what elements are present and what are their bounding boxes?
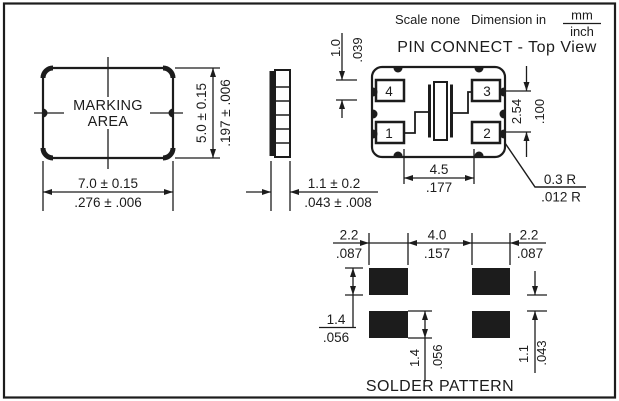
arrowhead-down bbox=[422, 329, 428, 338]
callout-corner-radius: 0.3 R .012 R bbox=[505, 143, 586, 205]
solder-pad-top-left bbox=[369, 268, 408, 295]
thickness-mm-label: 1.1 ± 0.2 bbox=[308, 176, 360, 191]
edge-notch bbox=[500, 110, 505, 119]
pin-1-label: 1 bbox=[385, 126, 393, 141]
dimension-package-height: 5.0 ± 0.15 .197 ± .006 bbox=[175, 68, 233, 158]
pad-gap-mm-label: 4.0 bbox=[428, 228, 447, 243]
dimension-row-gap: 1.1 .043 bbox=[516, 271, 549, 373]
arrowhead-up bbox=[350, 268, 356, 277]
arrowhead-up bbox=[524, 132, 530, 141]
corner-castellation bbox=[163, 68, 173, 78]
corner-castellation bbox=[163, 148, 173, 158]
marking-area-label-line1: MARKING bbox=[73, 98, 143, 114]
unit-mm-label: mm bbox=[571, 8, 593, 23]
edge-notch bbox=[475, 152, 484, 157]
arrowhead-right bbox=[465, 175, 474, 181]
corner-castellation bbox=[43, 148, 53, 158]
pad-pitch-mm-label: 2.54 bbox=[509, 99, 524, 124]
solder-pad-top-right bbox=[472, 268, 510, 295]
solder-pattern-view: 2.2 .087 4.0 .157 2.2 .087 1.4 .056 bbox=[319, 228, 549, 396]
scale-label: Scale none bbox=[395, 12, 460, 27]
arrowhead-down bbox=[350, 286, 356, 295]
package-top-view: MARKING AREA 7.0 ± 0.15 .276 ± .006 5.0 … bbox=[34, 57, 233, 211]
pad-height-left-mm-label: 1.4 bbox=[327, 312, 346, 327]
arrowhead-up bbox=[532, 311, 538, 320]
arrowhead-right bbox=[262, 189, 271, 195]
pad-height-mid-mm-label: 1.4 bbox=[407, 349, 422, 367]
thickness-inch-label: .043 ± .008 bbox=[304, 195, 371, 210]
pin-4-label: 4 bbox=[385, 84, 393, 99]
dimension-in-label: Dimension in bbox=[471, 12, 546, 27]
arrowhead-left bbox=[290, 189, 299, 195]
solder-pad-bottom-left bbox=[369, 311, 408, 338]
arrowhead-left bbox=[404, 175, 413, 181]
crystal-symbol bbox=[404, 82, 472, 140]
crystal-body bbox=[434, 82, 447, 140]
package-width-inch-label: .276 ± .006 bbox=[74, 195, 141, 210]
marking-area-label-line2: AREA bbox=[88, 114, 129, 130]
dimension-pad-height: 1.0 .039 bbox=[328, 33, 365, 118]
arrowhead-up bbox=[210, 68, 216, 77]
pad-height-left-inch-label: .056 bbox=[323, 330, 349, 345]
package-dimension-drawing: Scale none Dimension in mm inch PIN CONN… bbox=[0, 0, 619, 401]
dimension-pad-pitch: 2.54 .100 bbox=[506, 66, 547, 157]
pad-gap-inch-label: .157 bbox=[424, 246, 450, 261]
dimension-pad-widths-and-gap: 2.2 .087 4.0 .157 2.2 .087 bbox=[333, 228, 546, 266]
edge-notch bbox=[394, 152, 403, 157]
package-height-inch-label: .197 ± .006 bbox=[218, 79, 233, 146]
row-gap-mm-label: 1.1 bbox=[516, 345, 531, 363]
arrowhead-down bbox=[524, 82, 530, 91]
side-view-body bbox=[275, 70, 290, 157]
solder-pad-bottom-right bbox=[472, 311, 510, 338]
pin-connect-view: 4 3 1 2 1.0 .039 4 bbox=[328, 33, 586, 205]
arrowhead-down bbox=[532, 286, 538, 295]
arrowhead-up bbox=[422, 311, 428, 320]
pad-width-right-inch-label: .087 bbox=[517, 246, 543, 261]
dimension-pad-height-mid: 1.4 .056 bbox=[407, 311, 445, 382]
corner-castellation bbox=[43, 68, 53, 78]
technical-drawing-page: Scale none Dimension in mm inch PIN CONN… bbox=[0, 0, 619, 401]
unit-inch-label: inch bbox=[570, 24, 594, 39]
arrowhead-down bbox=[210, 149, 216, 158]
wire-pin1-to-crystal bbox=[404, 112, 428, 133]
edge-notch bbox=[373, 110, 378, 119]
row-gap-inch-label: .043 bbox=[534, 340, 549, 365]
pin-connect-title: PIN CONNECT - Top View bbox=[397, 39, 597, 56]
pad-pitch-inch-label: .100 bbox=[532, 99, 547, 124]
dimension-package-thickness: 1.1 ± 0.2 .043 ± .008 bbox=[246, 161, 378, 211]
pin-2-label: 2 bbox=[483, 126, 491, 141]
corner-radius-mm-label: 0.3 R bbox=[544, 172, 577, 187]
pad-width-right-mm-label: 2.2 bbox=[520, 228, 539, 243]
arrowhead-left bbox=[408, 240, 417, 246]
wire-pin3-to-crystal bbox=[453, 92, 472, 113]
edge-notch bbox=[475, 68, 484, 73]
pad-height-mm-label: 1.0 bbox=[328, 39, 343, 57]
dimension-pad-height-left: 1.4 .056 bbox=[319, 268, 363, 345]
edge-notch bbox=[394, 68, 403, 73]
pad-height-mid-inch-label: .056 bbox=[430, 344, 445, 369]
corner-radius-inch-label: .012 R bbox=[541, 190, 581, 205]
solder-pattern-title: SOLDER PATTERN bbox=[366, 378, 514, 395]
pad-span-mm-label: 4.5 bbox=[430, 162, 449, 177]
arrowhead-up bbox=[339, 100, 345, 109]
pad-width-left-inch-label: .087 bbox=[336, 246, 362, 261]
arrowhead-right bbox=[463, 240, 472, 246]
arrowhead-left bbox=[43, 189, 52, 195]
pad-width-left-mm-label: 2.2 bbox=[340, 228, 359, 243]
package-height-mm-label: 5.0 ± 0.15 bbox=[194, 83, 209, 143]
pad-height-inch-label: .039 bbox=[350, 37, 365, 62]
package-side-view: 1.1 ± 0.2 .043 ± .008 bbox=[246, 70, 378, 211]
arrowhead-right bbox=[164, 189, 173, 195]
package-width-mm-label: 7.0 ± 0.15 bbox=[78, 176, 138, 191]
arrowhead-down bbox=[339, 71, 345, 80]
header: Scale none Dimension in mm inch PIN CONN… bbox=[395, 8, 601, 57]
pin-3-label: 3 bbox=[483, 84, 491, 99]
pad-span-inch-label: .177 bbox=[426, 180, 452, 195]
